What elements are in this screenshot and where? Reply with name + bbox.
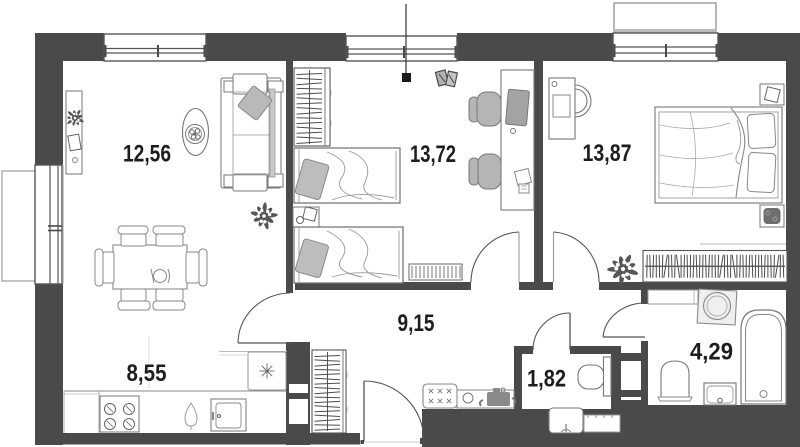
svg-text:9,15: 9,15 [398,310,435,337]
svg-text:13,72: 13,72 [410,141,456,168]
svg-text:4,29: 4,29 [690,339,733,366]
svg-text:12,56: 12,56 [123,141,171,168]
svg-text:13,87: 13,87 [583,140,632,167]
svg-text:8,55: 8,55 [127,360,167,387]
svg-text:1,82: 1,82 [527,366,566,393]
